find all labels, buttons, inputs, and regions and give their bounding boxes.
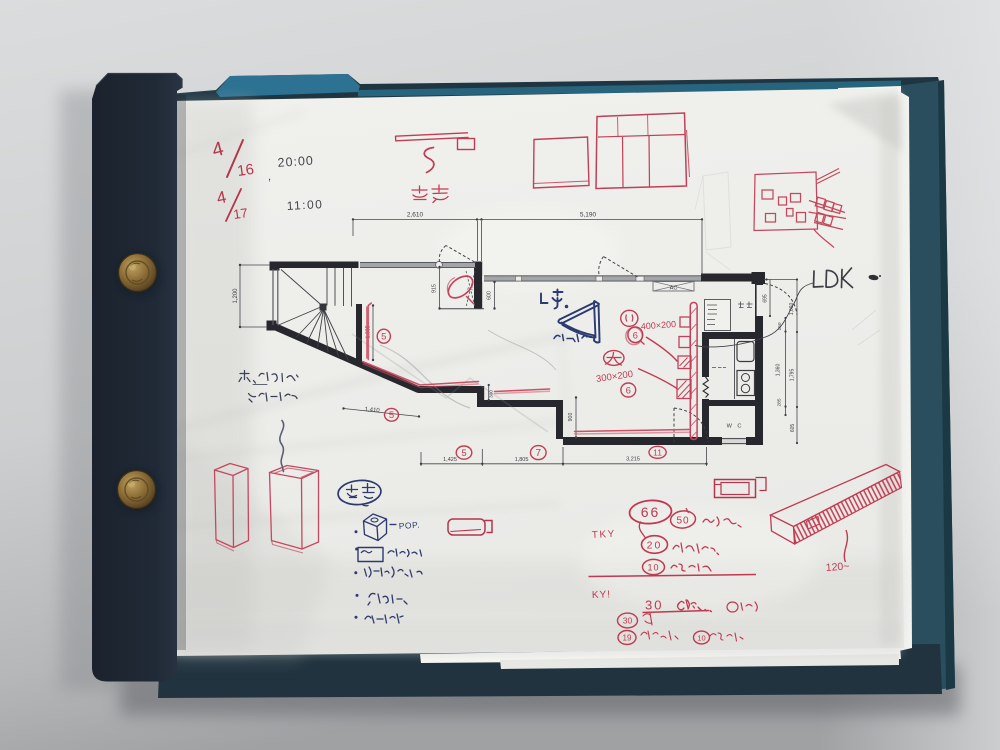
svg-text:285: 285 (777, 398, 783, 406)
svg-text:7: 7 (536, 448, 542, 459)
svg-text:,: , (268, 171, 271, 183)
svg-text:5,190: 5,190 (580, 212, 597, 219)
svg-text:20:00: 20:00 (277, 153, 314, 169)
svg-text:1,805: 1,805 (515, 457, 529, 463)
svg-text:KY!: KY! (592, 589, 611, 601)
svg-text:TKY: TKY (592, 529, 616, 541)
svg-text:1,200: 1,200 (233, 288, 239, 304)
svg-text:600: 600 (487, 291, 493, 300)
svg-text:1,360: 1,360 (776, 364, 782, 377)
svg-text:5: 5 (389, 410, 394, 421)
svg-text:66: 66 (641, 504, 661, 520)
svg-text:50: 50 (676, 516, 689, 527)
svg-text:900: 900 (568, 413, 574, 422)
svg-text:300: 300 (489, 390, 494, 398)
svg-text:10: 10 (697, 634, 705, 643)
svg-text:20: 20 (647, 540, 663, 552)
svg-text:5: 5 (461, 448, 466, 459)
svg-text:695: 695 (763, 294, 769, 303)
svg-text:11:00: 11:00 (286, 197, 323, 213)
svg-text:120~: 120~ (825, 560, 849, 574)
svg-text:5: 5 (381, 332, 386, 343)
svg-text:AC: AC (670, 286, 678, 292)
svg-text:POP.: POP. (398, 520, 420, 531)
svg-text:1,795: 1,795 (790, 369, 796, 382)
svg-text:2,610: 2,610 (407, 212, 424, 219)
svg-text:11: 11 (653, 447, 662, 457)
svg-text:3,215: 3,215 (626, 457, 640, 463)
svg-text:1,060: 1,060 (789, 303, 795, 316)
svg-text:30: 30 (645, 598, 663, 613)
svg-text:19: 19 (623, 634, 632, 643)
svg-text:30: 30 (623, 616, 633, 626)
svg-text:W C: W C (727, 424, 744, 430)
svg-text:1,425: 1,425 (443, 457, 457, 463)
svg-text:16: 16 (236, 161, 255, 180)
svg-text:10: 10 (647, 563, 659, 573)
svg-text:17: 17 (232, 205, 248, 222)
svg-text:915: 915 (432, 284, 438, 293)
svg-text:6: 6 (626, 385, 631, 396)
svg-text:605: 605 (790, 424, 796, 433)
svg-text:6: 6 (633, 330, 638, 341)
